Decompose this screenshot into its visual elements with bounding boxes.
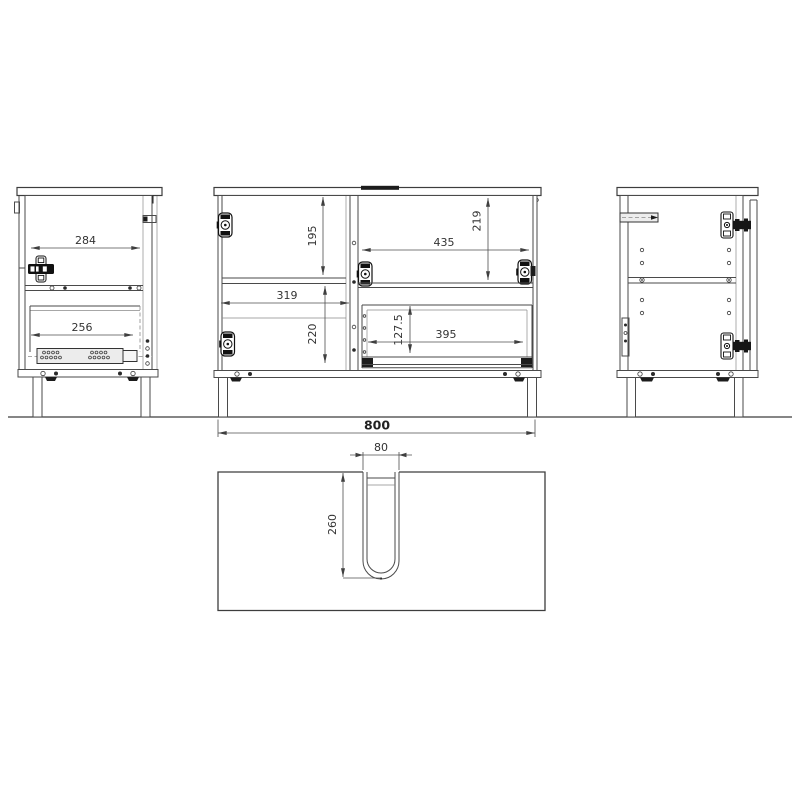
hinge-cup: [219, 332, 234, 356]
leg: [735, 378, 744, 418]
bottom-rail: [18, 370, 158, 378]
leg: [627, 378, 636, 418]
dim-284-label: 284: [75, 234, 96, 247]
dim-219-label: 219: [471, 211, 484, 232]
leg: [219, 378, 228, 418]
side-screw: [146, 339, 150, 343]
dim-319-label: 319: [277, 289, 298, 302]
drawer-slide-rail: [28, 349, 152, 364]
hinge-cup: [357, 262, 372, 286]
hinge-cup: [217, 213, 232, 237]
side-screw: [146, 354, 150, 358]
technical-drawing-canvas: 284 256: [0, 0, 800, 800]
shelf-screw-center: [728, 279, 730, 281]
bottom-screw: [716, 372, 720, 376]
dim-127-5-label: 127.5: [392, 314, 405, 346]
leg: [141, 377, 150, 417]
bracket-screw: [624, 340, 627, 343]
cutout-edge: [361, 186, 399, 190]
leg-plate: [513, 378, 525, 382]
carcass-body: [25, 196, 152, 371]
drawer-rail-end: [521, 358, 532, 367]
bracket-screw: [624, 324, 627, 327]
drawer-rail-end: [362, 358, 373, 367]
rail-body: [37, 349, 123, 364]
dim-80-label: 80: [374, 441, 388, 454]
leg-plate: [230, 378, 242, 382]
plumbing-cutout: [363, 472, 399, 580]
leg: [33, 377, 42, 417]
dim-220-label: 220: [306, 324, 319, 345]
dim-195-label: 195: [306, 226, 319, 247]
divider-hole: [352, 348, 356, 352]
left-side-view: 284 256: [15, 188, 163, 418]
bottom-screw: [118, 372, 122, 376]
bracket-screw: [144, 217, 148, 222]
rail-bracket: [123, 351, 137, 362]
top-panel: [617, 188, 758, 196]
dim-260: 260: [326, 473, 381, 578]
bottom-screw: [503, 372, 507, 376]
dim-435-label: 435: [434, 236, 455, 249]
hinge-cup: [516, 260, 531, 284]
dim-256-label: 256: [72, 321, 93, 334]
bottom-rail: [214, 371, 541, 378]
shelf-screw: [63, 286, 67, 290]
leg-plate: [45, 377, 57, 381]
divider-hole: [352, 280, 356, 284]
overall-width-dimension: 800: [218, 418, 535, 438]
dim-395-label: 395: [436, 328, 457, 341]
dim-260-label: 260: [326, 514, 339, 535]
right-side-view: [617, 188, 758, 418]
front-view: 195 319 220 435 219: [214, 186, 541, 417]
leg-plate: [640, 378, 654, 382]
shelf-screw-center: [641, 279, 643, 281]
top-panel: [17, 188, 162, 196]
leg-plate: [127, 377, 139, 381]
top-panel-view: 80 260: [218, 441, 545, 611]
panel-outline: [218, 472, 545, 611]
dim-800-label: 800: [364, 418, 390, 433]
shelf-screw: [128, 286, 132, 290]
leg: [528, 378, 537, 418]
technical-drawing-page: 284 256: [0, 0, 800, 800]
dim-80: 80: [350, 441, 412, 470]
bottom-screw: [54, 372, 58, 376]
leg-plate: [716, 378, 730, 382]
bottom-screw: [248, 372, 252, 376]
drawer-slide-rail: [620, 213, 658, 222]
hinge-arm-stub: [531, 266, 536, 276]
bottom-screw: [651, 372, 655, 376]
